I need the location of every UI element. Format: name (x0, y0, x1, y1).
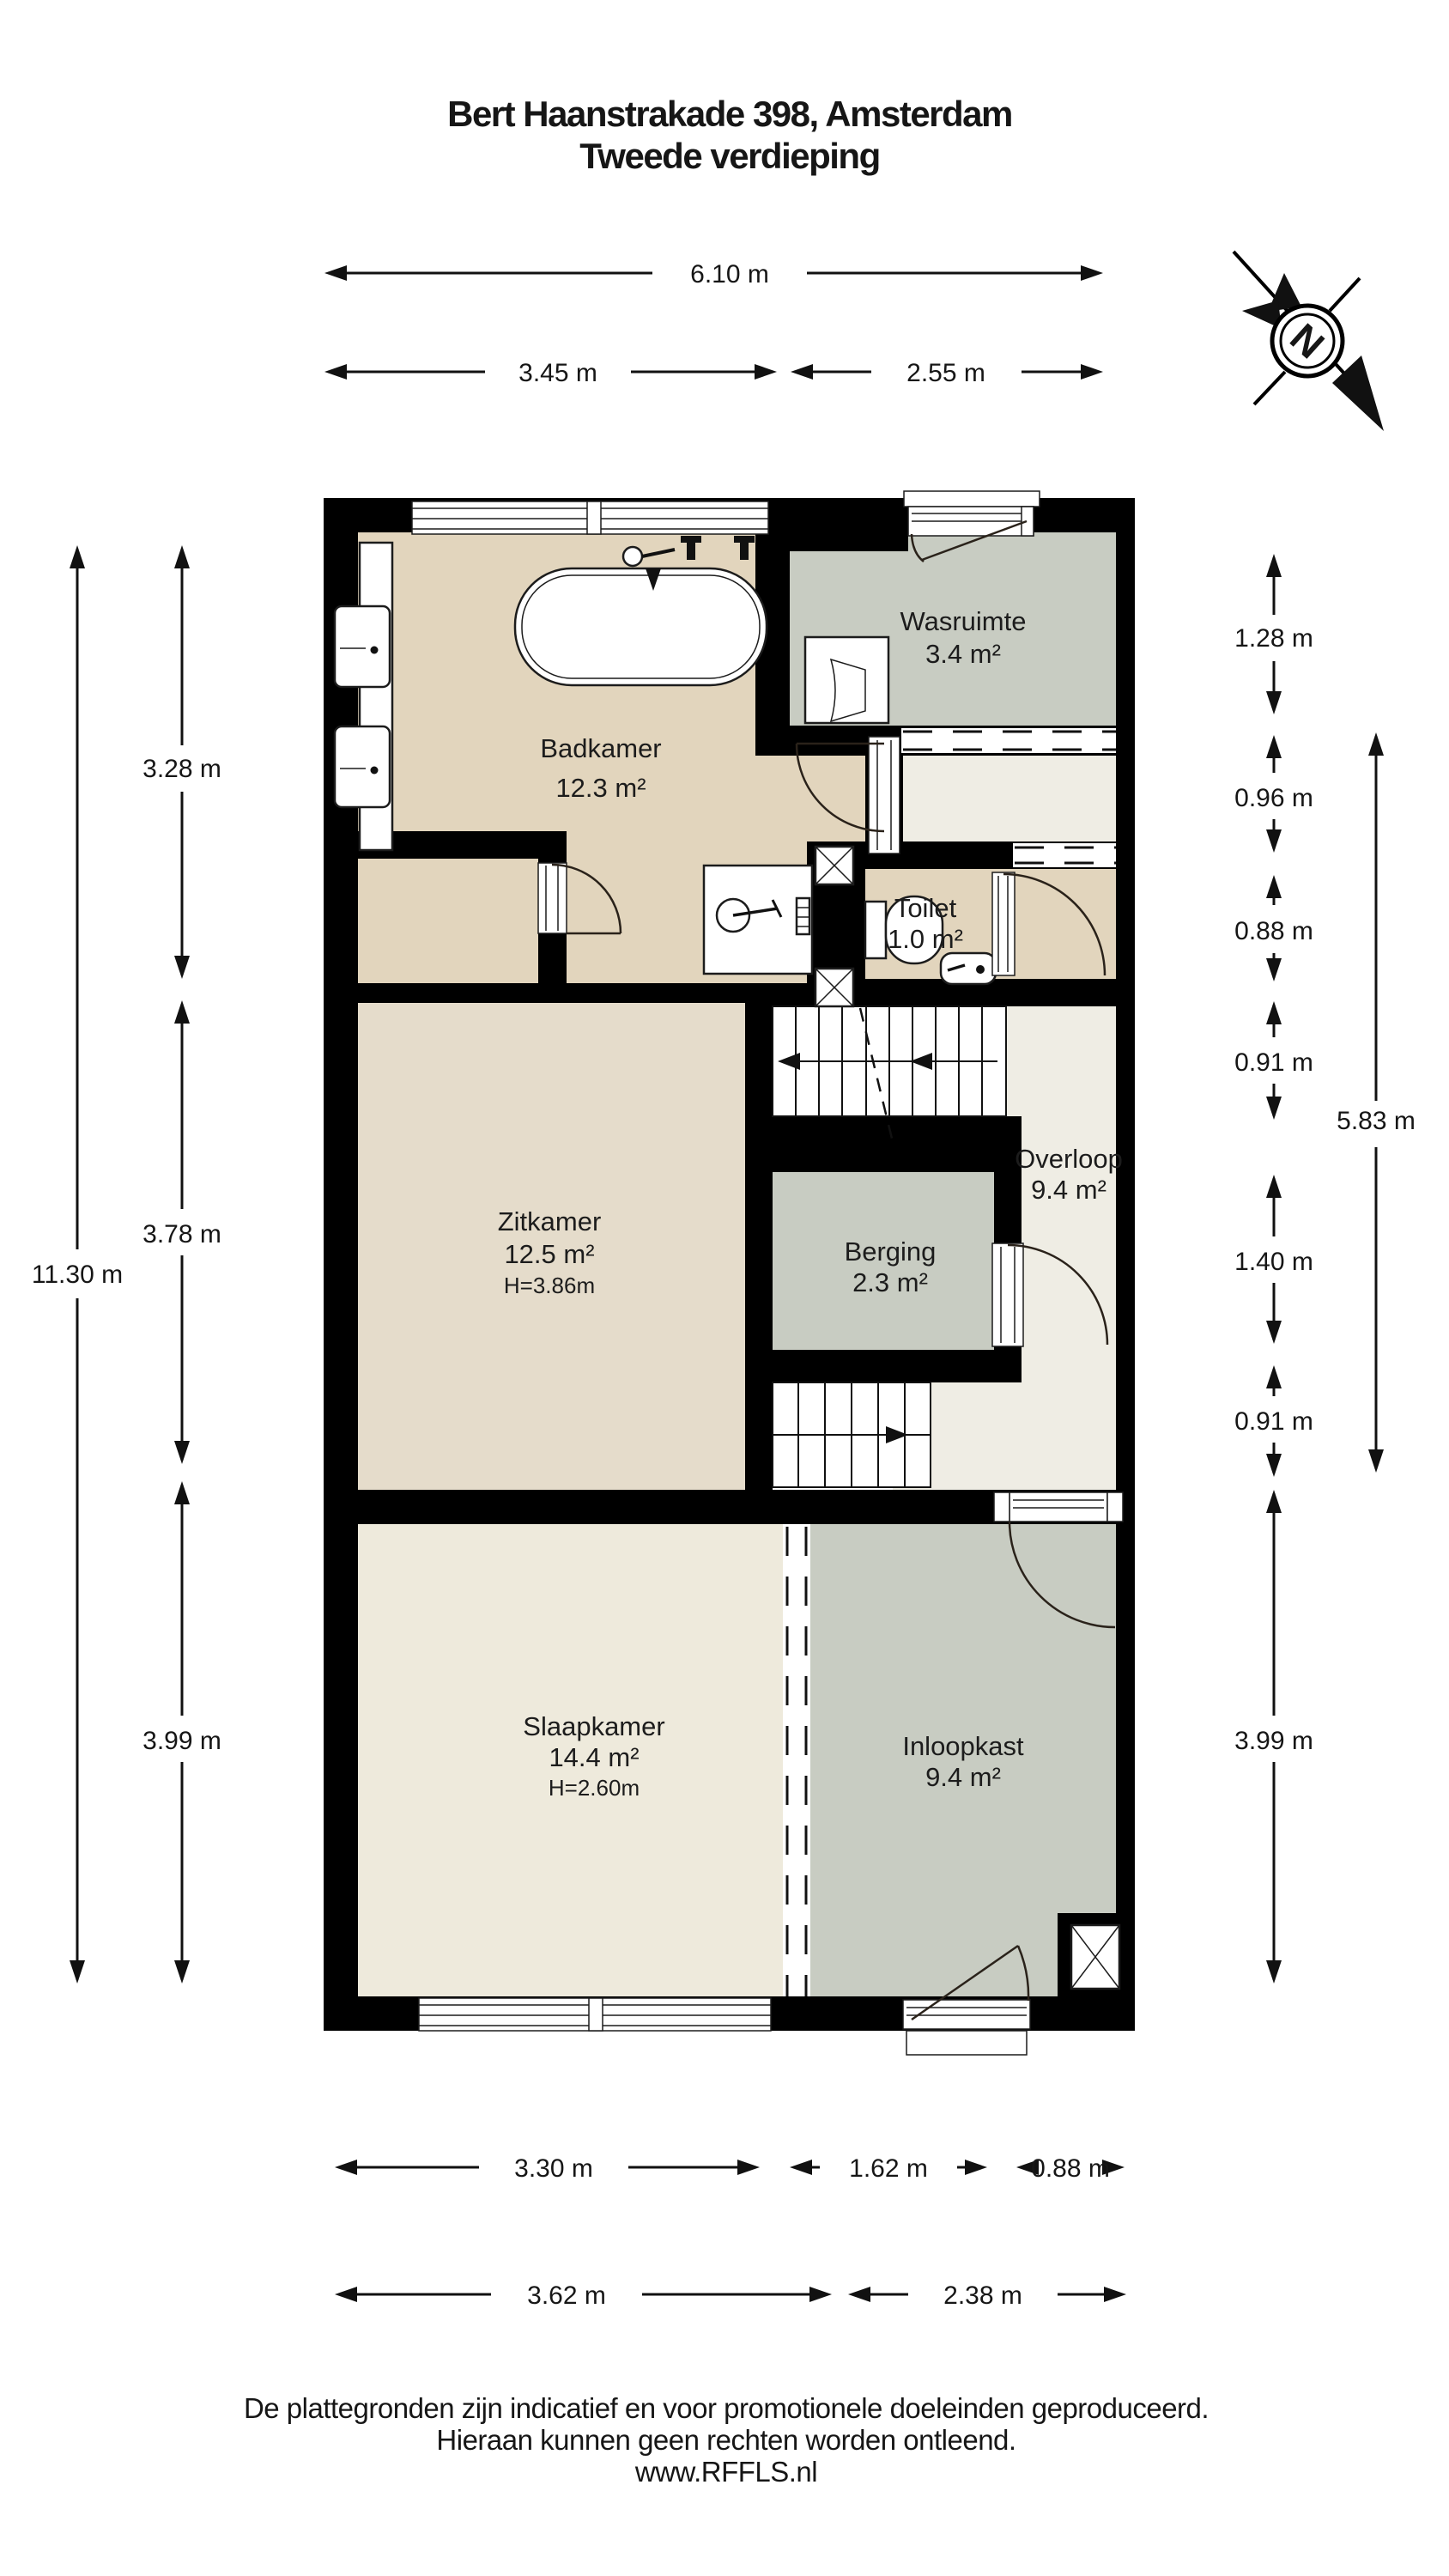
dimension-right-3: 0.88 m (1234, 875, 1313, 981)
footer-disclaimer-line2: Hieraan kunnen geen rechten worden ontle… (436, 2424, 1016, 2456)
wall-outer-right (1116, 498, 1135, 2031)
dim-label-bottom-2a: 3.62 m (527, 2281, 606, 2310)
dim-label-left-3: 3.99 m (142, 1727, 221, 1755)
floorplan-page: Bert Haanstrakade 398, Amsterdam Tweede … (0, 0, 1449, 2576)
compass-rose-icon: N (1234, 252, 1384, 431)
room-area-zitkamer: 12.5 m² (504, 1239, 594, 1269)
dimension-bottom-1c: 0.88 m (1016, 2154, 1125, 2183)
dimension-right-8: 5.83 m (1337, 732, 1416, 1473)
dim-label-right-8: 5.83 m (1337, 1107, 1416, 1135)
dimension-bottom-1b: 1.62 m (790, 2154, 987, 2183)
wall-berging-top (773, 1116, 1022, 1172)
window-slaapkamer (419, 1998, 771, 2031)
dim-label-right-5: 1.40 m (1234, 1248, 1313, 1276)
washing-machine (805, 637, 888, 723)
room-label-slaapkamer: Slaapkamer (523, 1711, 664, 1741)
footer-disclaimer-line1: De plattegronden zijn indicatief en voor… (244, 2392, 1209, 2424)
dim-label-bottom-1b: 1.62 m (849, 2154, 928, 2183)
opening-overloop-dashed (1013, 843, 1116, 867)
dimension-right-5: 1.40 m (1234, 1175, 1313, 1344)
partition-slaapkamer-inloopkast (783, 1524, 810, 1996)
dim-label-right-4: 0.91 m (1234, 1048, 1313, 1077)
room-height-slaapkamer: H=2.60m (549, 1775, 640, 1801)
room-label-inloopkast: Inloopkast (902, 1731, 1024, 1761)
shaft-x-icon-top (815, 847, 853, 884)
room-area-badkamer: 12.3 m² (555, 773, 646, 803)
dim-label-top-left: 3.45 m (518, 359, 597, 387)
wall-stair-patch (773, 983, 807, 1006)
toilet-basin (941, 953, 996, 984)
dimension-bottom-2b: 2.38 m (848, 2281, 1126, 2310)
wall-berging-bottom (773, 1350, 1022, 1382)
room-label-badkamer: Badkamer (540, 733, 661, 763)
dimension-top-width: 6.10 m (324, 260, 1103, 289)
room-label-overloop: Overloop (1015, 1144, 1123, 1174)
dimension-right-7: 3.99 m (1234, 1490, 1313, 1984)
dim-label-left-1: 3.28 m (142, 755, 221, 783)
room-area-overloop: 9.4 m² (1031, 1175, 1106, 1205)
dim-label-top-right: 2.55 m (906, 359, 985, 387)
dim-label-left-2: 3.78 m (142, 1220, 221, 1249)
wall-badkamer-zitkamer (324, 983, 773, 1003)
room-area-toilet: 1.0 m² (888, 924, 963, 954)
dimension-bottom-1a: 3.30 m (335, 2154, 760, 2183)
room-area-slaapkamer: 14.4 m² (549, 1742, 639, 1772)
dimension-top-right: 2.55 m (791, 359, 1103, 387)
dimension-right-6: 0.91 m (1234, 1365, 1313, 1477)
dim-label-right-2: 0.96 m (1234, 784, 1313, 812)
page-title-line2: Tweede verdieping (579, 136, 880, 176)
dim-label-right-6: 0.91 m (1234, 1407, 1313, 1436)
dimension-left-2: 3.78 m (142, 1000, 221, 1464)
dimension-left-3: 3.99 m (142, 1481, 221, 1984)
dimension-right-1: 1.28 m (1234, 554, 1313, 714)
staircase-lower (773, 1382, 931, 1487)
room-label-wasruimte: Wasruimte (900, 606, 1027, 636)
dimension-bottom-2a: 3.62 m (335, 2281, 832, 2310)
room-label-zitkamer: Zitkamer (498, 1206, 602, 1236)
dim-label-bottom-1c: 0.88 m (1031, 2154, 1110, 2183)
shaft-x-icon-bottom (815, 969, 853, 1006)
dim-label-right-1: 1.28 m (1234, 624, 1313, 653)
room-label-toilet: Toilet (894, 893, 957, 923)
wall-zitkamer-right (745, 983, 773, 1524)
opening-wasruimte-dashed (901, 728, 1116, 753)
footer-website: www.RFFLS.nl (634, 2456, 817, 2488)
room-area-inloopkast: 9.4 m² (925, 1762, 1001, 1792)
dim-label-right-3: 0.88 m (1234, 917, 1313, 945)
dimension-left-1: 3.28 m (142, 545, 221, 979)
room-area-berging: 2.3 m² (852, 1267, 928, 1297)
dimension-right-2: 0.96 m (1234, 735, 1313, 853)
page-title-line1: Bert Haanstrakade 398, Amsterdam (447, 94, 1012, 134)
room-height-zitkamer: H=3.86m (504, 1273, 595, 1298)
shaft-x-icon (1071, 1925, 1119, 1989)
room-area-wasruimte: 3.4 m² (925, 639, 1001, 669)
room-label-berging: Berging (845, 1236, 937, 1267)
dim-label-bottom-2b: 2.38 m (943, 2281, 1022, 2310)
dimension-top-left: 3.45 m (324, 359, 777, 387)
dim-label-left-total: 11.30 m (32, 1261, 123, 1289)
dim-label-top-total: 6.10 m (690, 260, 769, 289)
floorplan-canvas: Bert Haanstrakade 398, Amsterdam Tweede … (0, 0, 1449, 2576)
shower (704, 866, 812, 974)
dim-label-right-7: 3.99 m (1234, 1727, 1313, 1755)
dimension-left-total: 11.30 m (32, 545, 123, 1984)
dimension-right-4: 0.91 m (1234, 1001, 1313, 1120)
dim-label-bottom-1a: 3.30 m (514, 2154, 593, 2183)
window-badkamer (412, 501, 768, 534)
